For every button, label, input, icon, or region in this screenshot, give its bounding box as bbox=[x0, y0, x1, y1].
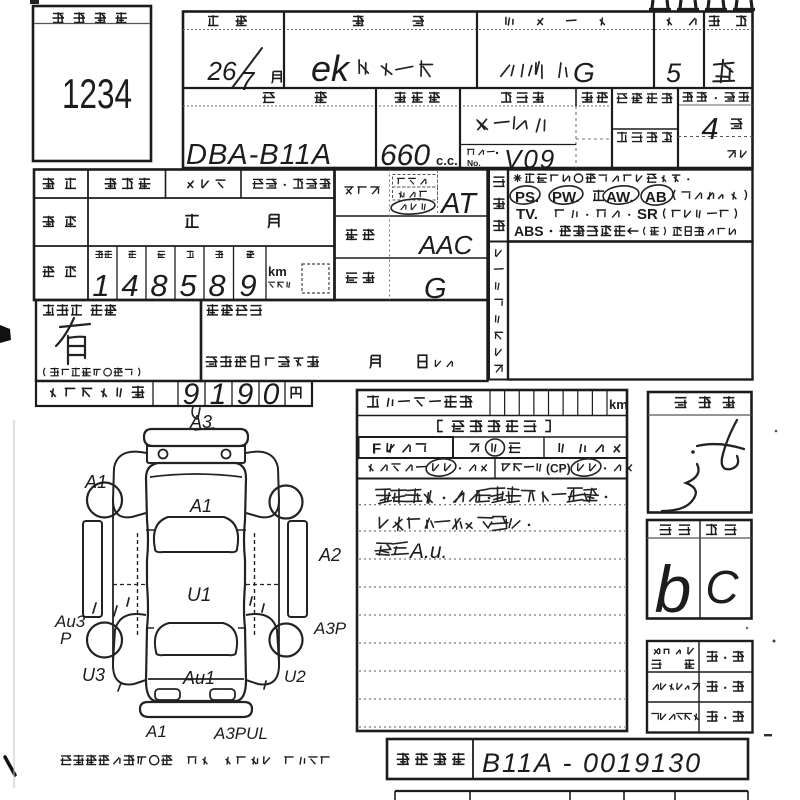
svg-text:4: 4 bbox=[701, 111, 718, 146]
svg-text:G: G bbox=[424, 273, 447, 305]
svg-text:1: 1 bbox=[92, 268, 109, 303]
svg-text:7: 7 bbox=[240, 66, 256, 96]
svg-text:TV.: TV. bbox=[516, 206, 538, 223]
svg-text:A3P: A3P bbox=[313, 619, 347, 638]
svg-text:A2: A2 bbox=[318, 545, 341, 565]
svg-text:AT: AT bbox=[439, 188, 478, 220]
svg-text:c.c.: c.c. bbox=[436, 153, 458, 168]
svg-text:(CP): (CP) bbox=[546, 462, 571, 476]
svg-text:km: km bbox=[609, 397, 628, 412]
svg-text:G: G bbox=[573, 57, 595, 88]
svg-text:5: 5 bbox=[179, 268, 197, 303]
svg-text:A1: A1 bbox=[189, 496, 212, 516]
svg-text:Au1: Au1 bbox=[182, 668, 215, 688]
svg-text:A3PUL: A3PUL bbox=[213, 724, 268, 743]
svg-text:A1: A1 bbox=[84, 472, 107, 492]
svg-text:DBA-B11A: DBA-B11A bbox=[186, 139, 332, 171]
svg-text:9: 9 bbox=[237, 378, 254, 411]
svg-text:0: 0 bbox=[263, 378, 280, 411]
svg-text:26: 26 bbox=[207, 56, 237, 86]
svg-text:A1: A1 bbox=[145, 722, 167, 741]
svg-text:A.u.: A.u. bbox=[408, 540, 447, 563]
svg-text:ABS: ABS bbox=[514, 223, 544, 239]
svg-text:5: 5 bbox=[666, 58, 682, 88]
svg-text:8: 8 bbox=[150, 268, 168, 303]
svg-text:C: C bbox=[705, 561, 739, 613]
svg-text:F: F bbox=[372, 441, 381, 458]
svg-text:U3: U3 bbox=[82, 665, 105, 685]
svg-text:b: b bbox=[655, 552, 692, 626]
svg-text:SR: SR bbox=[637, 206, 658, 223]
svg-text:U1: U1 bbox=[187, 585, 211, 606]
svg-text:660: 660 bbox=[380, 139, 430, 172]
svg-text:1: 1 bbox=[210, 378, 227, 411]
svg-text:P: P bbox=[60, 629, 72, 648]
svg-text:B11A - 0019130: B11A - 0019130 bbox=[482, 748, 702, 778]
svg-text:km: km bbox=[268, 264, 287, 279]
svg-text:8: 8 bbox=[208, 268, 226, 303]
svg-text:9: 9 bbox=[239, 268, 256, 303]
svg-text:U2: U2 bbox=[284, 667, 306, 686]
svg-text:1234: 1234 bbox=[62, 70, 132, 117]
svg-text:9: 9 bbox=[183, 378, 200, 411]
svg-text:No.: No. bbox=[467, 158, 481, 168]
svg-text:AAC: AAC bbox=[417, 230, 473, 260]
svg-text:4: 4 bbox=[121, 268, 138, 303]
svg-text:ek: ek bbox=[311, 48, 351, 89]
